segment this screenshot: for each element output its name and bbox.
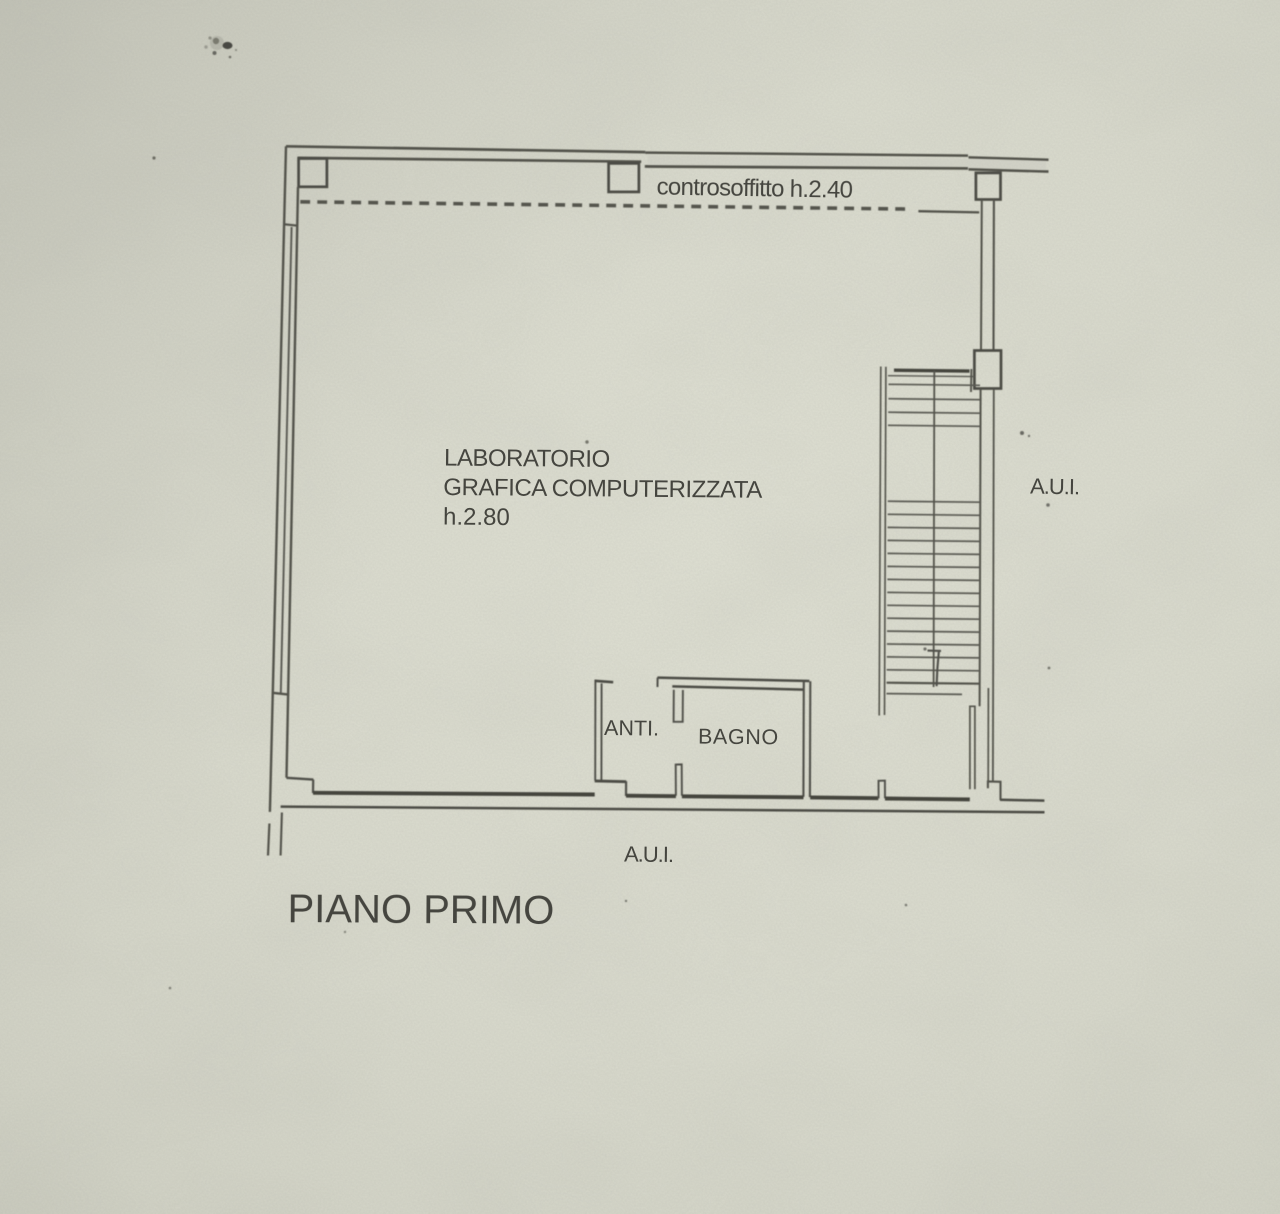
- svg-text:ANTI.: ANTI.: [604, 716, 659, 741]
- svg-text:A.U.I.: A.U.I.: [1030, 474, 1079, 500]
- svg-text:PIANO PRIMO: PIANO PRIMO: [287, 887, 554, 933]
- svg-text:controsoffitto h.2.40: controsoffitto h.2.40: [656, 174, 852, 204]
- svg-text:LABORATORIO: LABORATORIO: [444, 445, 610, 473]
- svg-text:h.2.80: h.2.80: [443, 503, 510, 531]
- svg-text:A.U.I.: A.U.I.: [624, 842, 673, 868]
- svg-text:BAGNO: BAGNO: [698, 725, 779, 750]
- svg-text:GRAFICA COMPUTERIZZATA: GRAFICA COMPUTERIZZATA: [443, 474, 762, 504]
